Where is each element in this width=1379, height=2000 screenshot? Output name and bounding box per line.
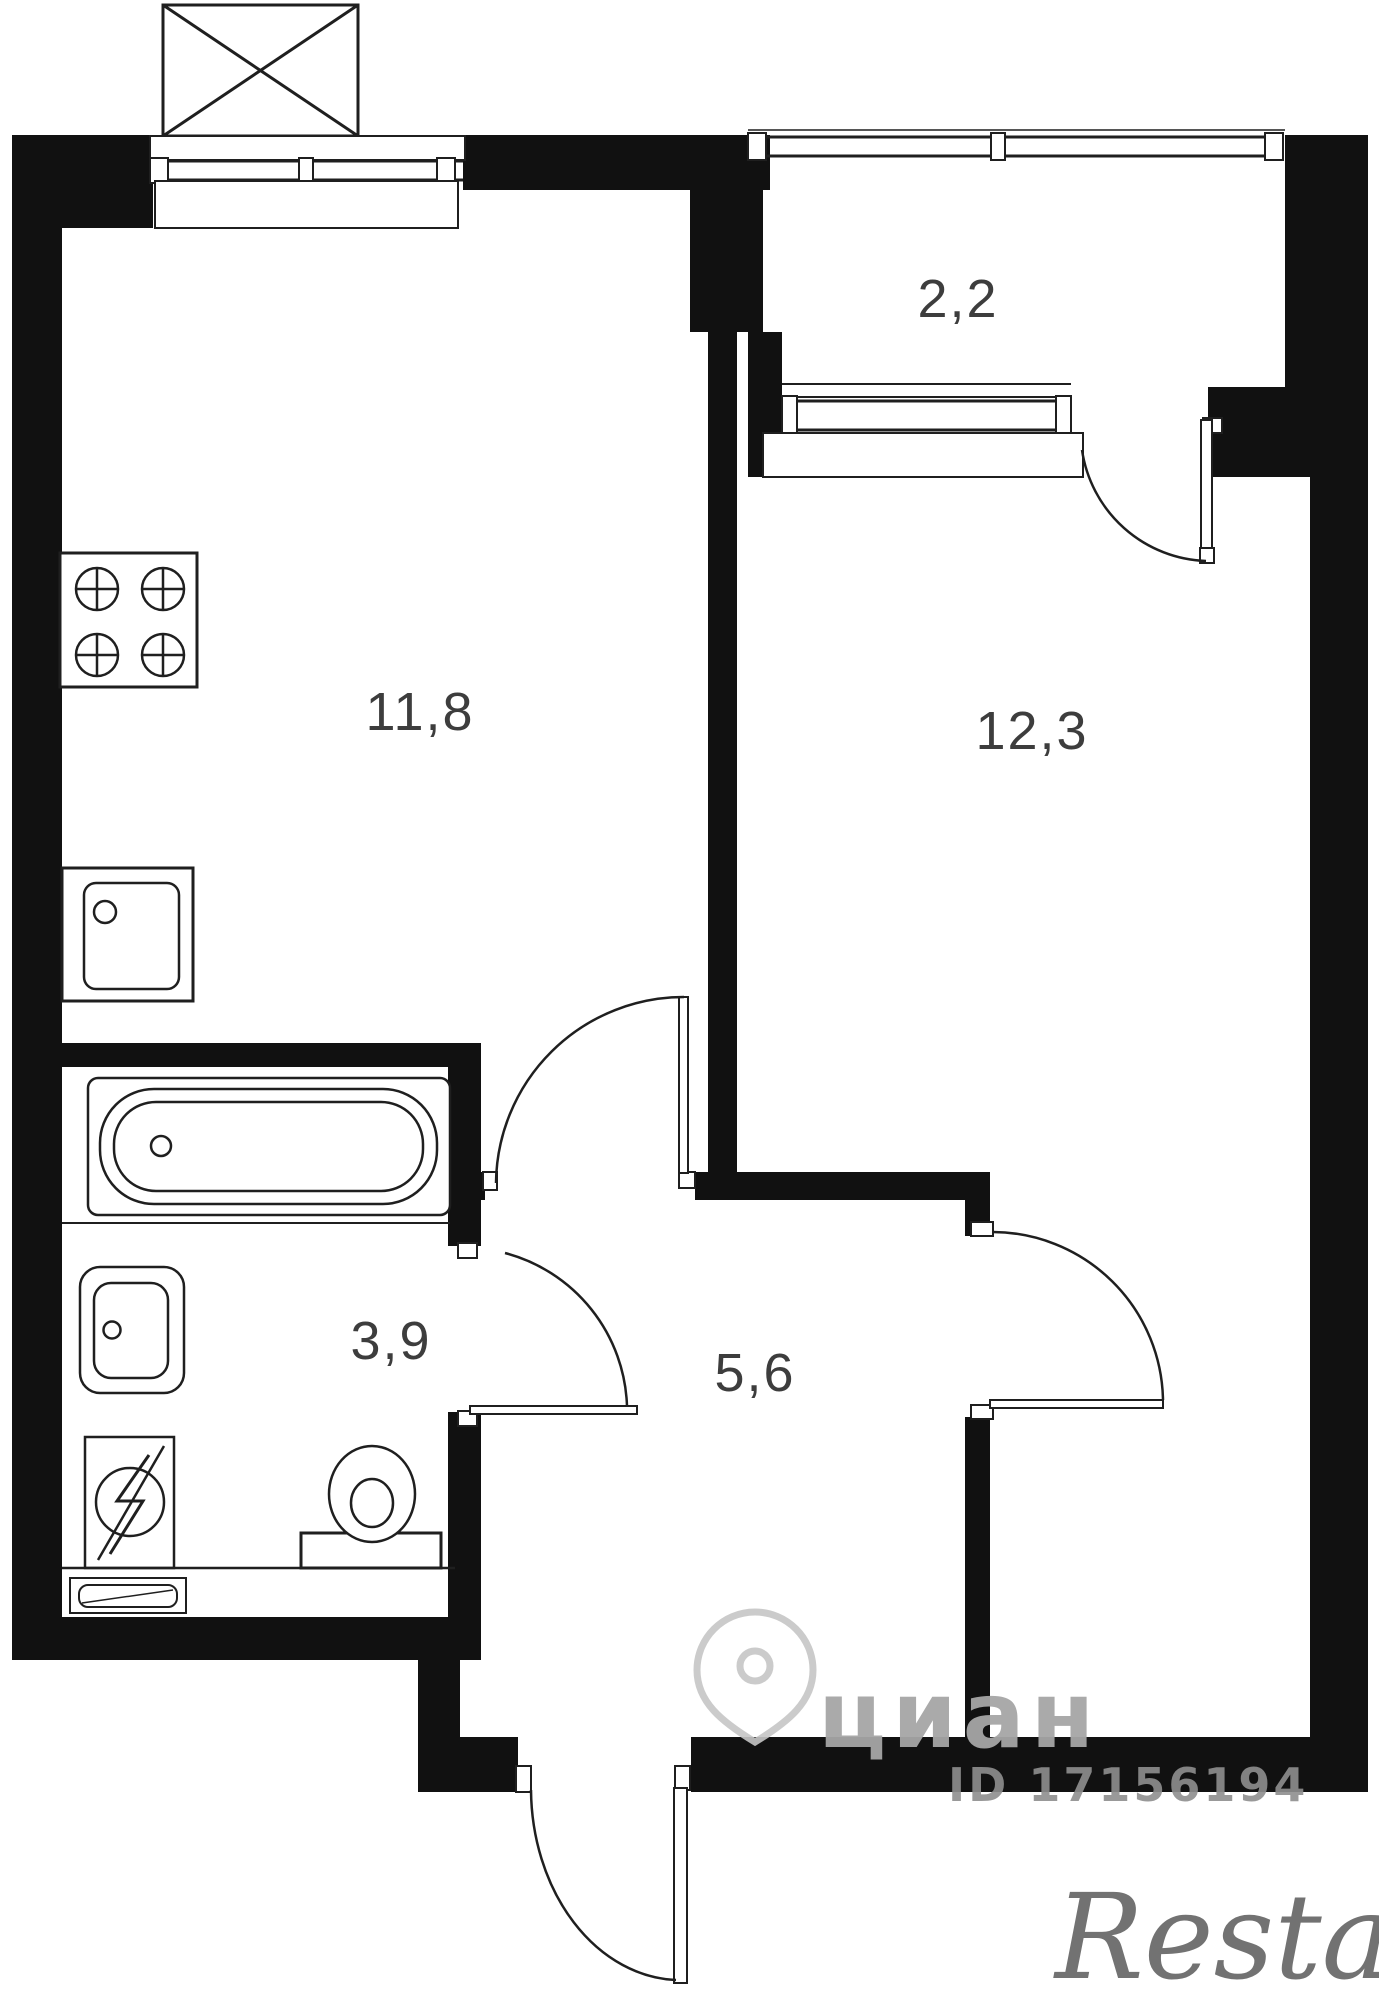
entrance-door-jamb-right — [675, 1766, 690, 1790]
washbasin-icon — [80, 1267, 184, 1393]
entrance-door-arc — [531, 1790, 676, 1980]
balcony-window-cap-left — [748, 133, 766, 160]
gas-stove-icon — [60, 553, 197, 687]
balcony-door-leaf — [1201, 420, 1212, 563]
floor-plan-drawing — [0, 0, 1379, 2000]
kitchen-sink-icon — [62, 868, 193, 1001]
wall-balcony-left-block — [690, 187, 763, 332]
bathtub-icon — [62, 1078, 450, 1223]
balcony-door-arc — [1082, 450, 1206, 561]
listing-id-watermark: ID 17156194 — [948, 1758, 1308, 1812]
wall-hall-top-right — [695, 1172, 990, 1200]
living-room-window-cap-left — [782, 396, 797, 434]
walls — [12, 135, 1368, 1792]
kitchen-window-inner-sill — [155, 181, 458, 228]
kitchen-door — [483, 997, 695, 1190]
living-room-window-sill — [763, 433, 1083, 477]
living-room-window-cap-right — [1056, 396, 1071, 434]
kitchen-window-cap-right — [437, 158, 455, 183]
wall-left — [12, 135, 62, 1660]
kitchen-window — [150, 136, 465, 228]
kitchen-area-label: 11,8 — [365, 681, 474, 743]
wall-entrance-left-block — [460, 1737, 518, 1792]
wall-partition-kitchen-room — [708, 330, 737, 1190]
cian-logo-watermark: циан — [818, 1662, 1100, 1769]
wall-top-mid-segment — [463, 135, 770, 190]
balcony-window-mullion — [991, 133, 1005, 160]
bathroom-door-arc — [505, 1253, 627, 1406]
entrance-door — [516, 1766, 690, 1983]
living-room-door-jamb-top — [971, 1222, 993, 1236]
ventilation-shaft-icon — [163, 5, 358, 136]
entrance-door-jamb-left — [516, 1766, 531, 1792]
living-room-window — [763, 384, 1083, 477]
living-room-door — [971, 1222, 1163, 1419]
bathroom-door — [458, 1243, 637, 1426]
bathroom-door-leaf — [470, 1406, 637, 1414]
washing-machine-icon — [85, 1437, 174, 1568]
kitchen-window-cap-left — [150, 158, 168, 183]
toilet-icon — [301, 1446, 441, 1568]
wall-bathroom-right-upper — [448, 1067, 481, 1246]
hallway-area-label: 5,6 — [714, 1342, 795, 1404]
wall-bottom-left — [12, 1617, 460, 1660]
balcony-door — [1082, 418, 1222, 563]
wall-bottom-step — [418, 1660, 460, 1792]
living-room-area-label: 12,3 — [975, 700, 1088, 762]
kitchen-window-mullion — [299, 158, 313, 183]
kitchen-door-arc — [496, 997, 684, 1183]
floor-plan: 11,8 2,2 12,3 3,9 5,6 циан ID 17156194 R… — [0, 0, 1379, 2000]
wall-balcony-right — [1285, 135, 1368, 477]
balcony-window — [748, 130, 1285, 160]
wall-right — [1310, 477, 1368, 1792]
kitchen-window-outer-sill — [150, 136, 465, 160]
map-pin-icon — [697, 1612, 813, 1742]
living-room-door-leaf — [990, 1400, 1163, 1408]
entrance-door-leaf — [674, 1788, 687, 1983]
living-room-door-arc — [993, 1232, 1163, 1400]
bathroom-door-jamb-top — [458, 1243, 477, 1258]
kitchen-door-leaf — [679, 997, 688, 1173]
radiator-icon — [62, 1568, 455, 1613]
agency-watermark: Restate — [1055, 1868, 1379, 2000]
bathroom-area-label: 3,9 — [350, 1310, 431, 1372]
wall-top-left-segment — [12, 135, 153, 228]
kitchen-door-jamb-right — [679, 1172, 695, 1188]
wall-bathroom-top — [45, 1043, 481, 1067]
balcony-area-label: 2,2 — [917, 268, 998, 330]
balcony-window-cap-right — [1265, 133, 1283, 160]
